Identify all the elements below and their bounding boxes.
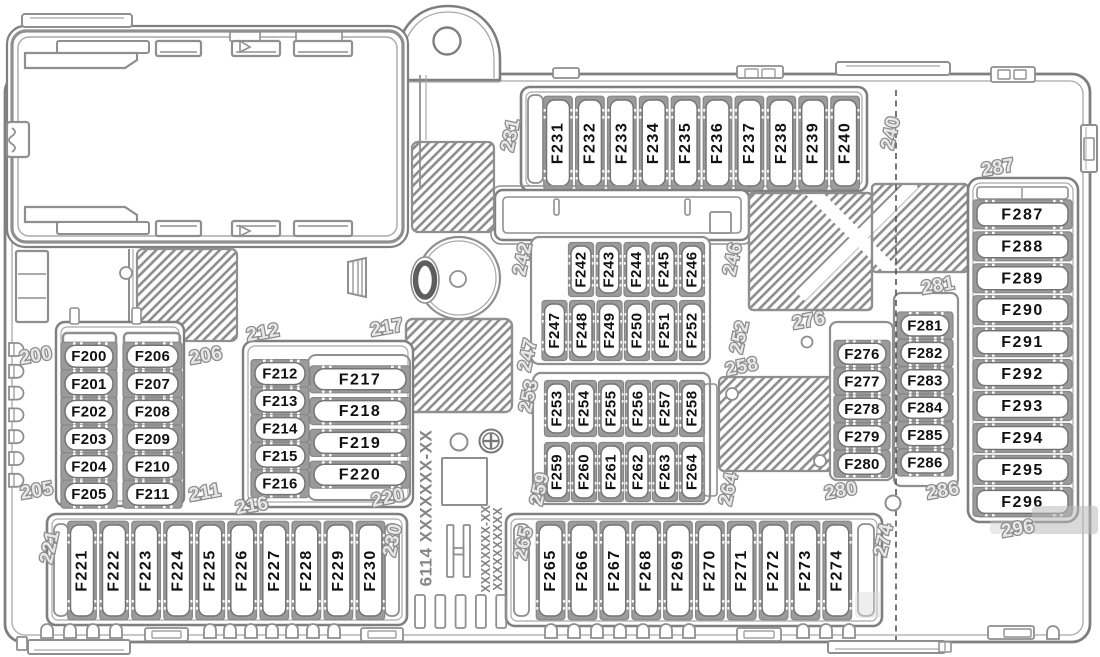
svg-text:F265: F265 bbox=[542, 549, 559, 591]
svg-text:F283: F283 bbox=[907, 372, 942, 389]
svg-text:F206: F206 bbox=[135, 348, 170, 365]
svg-text:F214: F214 bbox=[262, 421, 298, 438]
svg-text:F237: F237 bbox=[741, 122, 758, 164]
svg-text:F228: F228 bbox=[298, 549, 315, 591]
svg-text:F216: F216 bbox=[262, 476, 297, 493]
svg-text:XXXXXXXXXX: XXXXXXXXXX bbox=[491, 507, 505, 591]
svg-text:F225: F225 bbox=[202, 549, 219, 591]
svg-text:F257: F257 bbox=[657, 390, 674, 426]
svg-text:F224: F224 bbox=[170, 549, 187, 591]
svg-text:F229: F229 bbox=[330, 549, 347, 591]
svg-text:F217: F217 bbox=[339, 371, 381, 388]
svg-text:F212: F212 bbox=[262, 366, 297, 383]
svg-text:F270: F270 bbox=[701, 549, 718, 591]
svg-text:F239: F239 bbox=[805, 122, 822, 164]
svg-text:F202: F202 bbox=[71, 403, 106, 420]
svg-text:F213: F213 bbox=[262, 393, 297, 410]
svg-text:F222: F222 bbox=[106, 549, 123, 591]
svg-text:F209: F209 bbox=[135, 431, 170, 448]
svg-text:F264: F264 bbox=[684, 454, 701, 490]
svg-text:F266: F266 bbox=[574, 549, 591, 591]
svg-text:F215: F215 bbox=[262, 448, 297, 465]
svg-text:F269: F269 bbox=[670, 549, 687, 591]
svg-text:F200: F200 bbox=[71, 348, 106, 365]
svg-text:F295: F295 bbox=[1001, 462, 1043, 479]
svg-text:F247: F247 bbox=[546, 312, 563, 348]
svg-text:F252: F252 bbox=[684, 312, 701, 348]
svg-text:F201: F201 bbox=[71, 376, 106, 393]
svg-text:F282: F282 bbox=[907, 345, 942, 362]
svg-text:F271: F271 bbox=[733, 549, 750, 591]
svg-text:F254: F254 bbox=[576, 390, 593, 426]
svg-text:F278: F278 bbox=[844, 401, 879, 418]
svg-text:F272: F272 bbox=[765, 549, 782, 591]
svg-text:F255: F255 bbox=[603, 390, 620, 426]
svg-text:F249: F249 bbox=[601, 312, 618, 348]
svg-text:F277: F277 bbox=[844, 373, 879, 390]
svg-text:F286: F286 bbox=[907, 455, 942, 472]
svg-text:F253: F253 bbox=[549, 390, 566, 426]
svg-text:F211: F211 bbox=[135, 486, 170, 503]
svg-text:F294: F294 bbox=[1001, 430, 1043, 447]
svg-text:F223: F223 bbox=[138, 549, 155, 591]
svg-text:F267: F267 bbox=[606, 549, 623, 591]
svg-text:F219: F219 bbox=[339, 435, 381, 452]
svg-text:F240: F240 bbox=[837, 122, 854, 164]
svg-text:F256: F256 bbox=[630, 390, 647, 426]
svg-text:F248: F248 bbox=[574, 312, 591, 348]
svg-text:F260: F260 bbox=[576, 454, 593, 490]
svg-text:F273: F273 bbox=[797, 549, 814, 591]
svg-text:F232: F232 bbox=[581, 122, 598, 164]
svg-text:F203: F203 bbox=[71, 431, 106, 448]
svg-text:F233: F233 bbox=[613, 122, 630, 164]
svg-text:F289: F289 bbox=[1001, 270, 1043, 287]
svg-text:F243: F243 bbox=[600, 251, 617, 287]
svg-text:F293: F293 bbox=[1001, 398, 1043, 415]
svg-text:F246: F246 bbox=[684, 251, 701, 287]
svg-text:F263: F263 bbox=[657, 454, 674, 490]
svg-text:F238: F238 bbox=[773, 122, 790, 164]
svg-text:F285: F285 bbox=[907, 427, 942, 444]
svg-text:F208: F208 bbox=[135, 403, 170, 420]
svg-text:F234: F234 bbox=[645, 122, 662, 164]
svg-text:F251: F251 bbox=[656, 312, 673, 348]
svg-text:F227: F227 bbox=[266, 549, 283, 591]
svg-text:F236: F236 bbox=[709, 122, 726, 164]
svg-text:F287: F287 bbox=[1001, 206, 1043, 223]
svg-text:F207: F207 bbox=[135, 376, 170, 393]
svg-text:F274: F274 bbox=[829, 549, 846, 591]
svg-text:F221: F221 bbox=[74, 549, 91, 591]
svg-text:F281: F281 bbox=[907, 318, 942, 335]
svg-text:F210: F210 bbox=[135, 459, 170, 476]
svg-text:F244: F244 bbox=[628, 251, 645, 287]
svg-text:F245: F245 bbox=[656, 251, 673, 287]
svg-text:F231: F231 bbox=[550, 122, 567, 164]
svg-text:F220: F220 bbox=[339, 467, 381, 484]
svg-text:F276: F276 bbox=[844, 346, 879, 363]
svg-text:6114 XXXXXXX-XX: 6114 XXXXXXX-XX bbox=[417, 429, 436, 586]
svg-text:F280: F280 bbox=[844, 456, 879, 473]
svg-text:F292: F292 bbox=[1001, 366, 1043, 383]
svg-text:F268: F268 bbox=[638, 549, 655, 591]
svg-text:F204: F204 bbox=[71, 459, 107, 476]
svg-text:F250: F250 bbox=[629, 312, 646, 348]
svg-text:F205: F205 bbox=[71, 486, 106, 503]
svg-text:F235: F235 bbox=[677, 122, 694, 164]
svg-text:F279: F279 bbox=[844, 428, 879, 445]
svg-text:F291: F291 bbox=[1001, 334, 1043, 351]
svg-text:F262: F262 bbox=[630, 454, 647, 490]
svg-text:F242: F242 bbox=[573, 251, 590, 287]
svg-text:F230: F230 bbox=[362, 549, 379, 591]
svg-text:F258: F258 bbox=[684, 390, 701, 426]
svg-text:F284: F284 bbox=[907, 400, 943, 417]
svg-text:F288: F288 bbox=[1001, 238, 1043, 255]
svg-text:F226: F226 bbox=[234, 549, 251, 591]
svg-text:F261: F261 bbox=[603, 454, 620, 490]
svg-text:F218: F218 bbox=[339, 403, 381, 420]
svg-text:F290: F290 bbox=[1001, 302, 1043, 319]
